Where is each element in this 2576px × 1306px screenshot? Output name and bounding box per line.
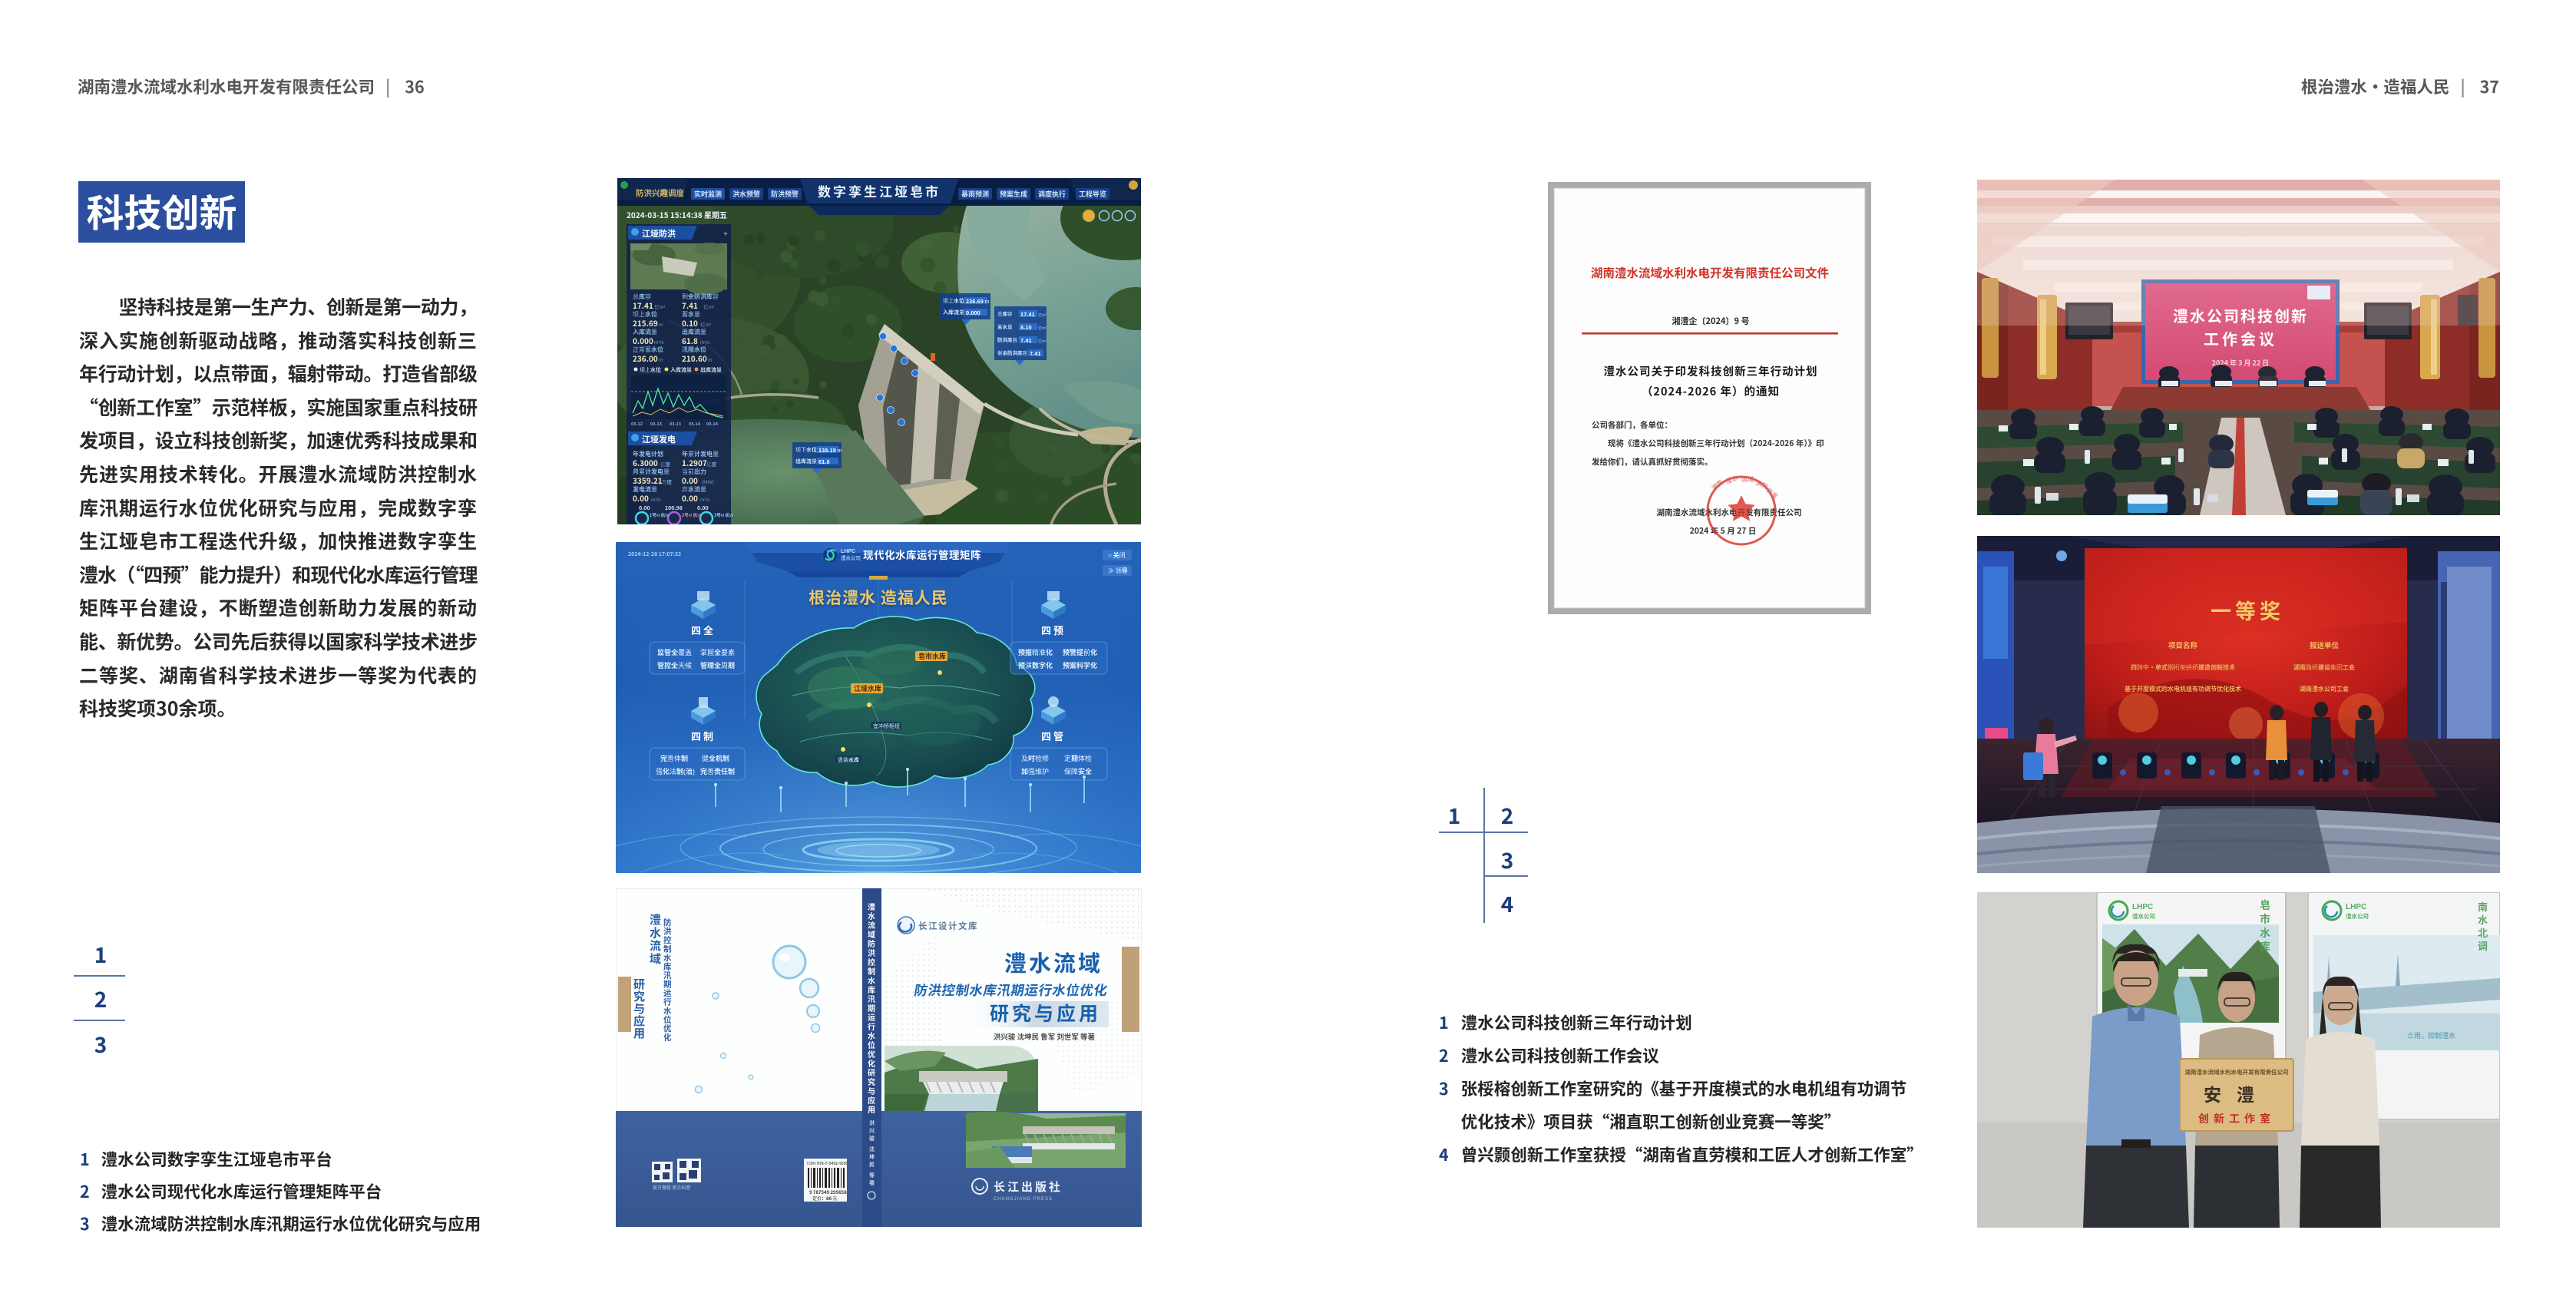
svg-text:0.00: 0.00 bbox=[682, 474, 698, 486]
svg-text:8.10: 8.10 bbox=[1020, 324, 1032, 332]
svg-text:现代化水库运行管理矩阵: 现代化水库运行管理矩阵 bbox=[863, 547, 981, 562]
svg-text:0.00: 0.00 bbox=[639, 504, 650, 512]
svg-text:坝上水位: 坝上水位 bbox=[943, 297, 964, 305]
svg-text:100.98: 100.98 bbox=[665, 504, 683, 512]
svg-text:0.000: 0.000 bbox=[633, 335, 653, 346]
svg-text:澧水流域: 澧水流域 bbox=[1004, 946, 1103, 978]
svg-text:m: m bbox=[659, 320, 663, 328]
svg-text:亿m³: 亿m³ bbox=[1038, 326, 1047, 331]
svg-text:3359.21: 3359.21 bbox=[633, 474, 663, 486]
svg-text:管理全周期: 管理全周期 bbox=[700, 660, 735, 670]
svg-text:预演数字化: 预演数字化 bbox=[1018, 660, 1053, 670]
svg-text:2024 年 5 月 27 日: 2024 年 5 月 27 日 bbox=[1690, 525, 1757, 537]
svg-text:m: m bbox=[659, 355, 663, 363]
svg-text:强化法制(治): 强化法制(治) bbox=[656, 766, 695, 776]
svg-text:2号M 机W: 2号M 机W bbox=[682, 512, 702, 518]
svg-text:蓄水量: 蓄水量 bbox=[997, 322, 1013, 330]
svg-text:LHPC: LHPC bbox=[2346, 900, 2366, 911]
svg-text:四全: 四全 bbox=[691, 623, 716, 637]
svg-text:江垭水库: 江垭水库 bbox=[854, 683, 881, 693]
svg-text:03-12: 03-12 bbox=[631, 421, 643, 427]
svg-text:坝上水位: 坝上水位 bbox=[640, 366, 661, 374]
svg-text:掌握全要素: 掌握全要素 bbox=[700, 647, 735, 657]
svg-text:兴: 兴 bbox=[869, 1127, 875, 1135]
svg-text:骏: 骏 bbox=[869, 1135, 875, 1142]
svg-text:210.60: 210.60 bbox=[682, 352, 707, 364]
svg-text:预报精准化: 预报精准化 bbox=[1018, 647, 1053, 657]
svg-text:合用，控制澧水: 合用，控制澧水 bbox=[2407, 1030, 2455, 1040]
svg-text:亿m³: 亿m³ bbox=[1038, 339, 1047, 344]
svg-text:发给你们，请认真抓好贯彻落实。: 发给你们，请认真抓好贯彻落实。 bbox=[1592, 456, 1713, 468]
svg-text:安澧: 安澧 bbox=[2204, 1080, 2270, 1106]
svg-text:公司各部门，各单位：: 公司各部门，各单位： bbox=[1592, 419, 1672, 431]
svg-text:湖南澧水流域水利水电开发有限责任公司: 湖南澧水流域水利水电开发有限责任公司 bbox=[2185, 1068, 2289, 1076]
svg-text:四管: 四管 bbox=[1041, 729, 1066, 743]
svg-text:长江设计文库: 长江设计文库 bbox=[918, 920, 978, 932]
svg-text:防洪控制水库汛期运行水位优化: 防洪控制水库汛期运行水位优化 bbox=[913, 980, 1109, 1000]
svg-text:湖南澧水流域水利水电开发有限责任公司文件: 湖南澧水流域水利水电开发有限责任公司文件 bbox=[1591, 264, 1829, 281]
svg-text:暴雨预测: 暴雨预测 bbox=[961, 189, 989, 199]
svg-text:江垭防洪: 江垭防洪 bbox=[642, 227, 676, 240]
svg-text:亿度: 亿度 bbox=[706, 460, 717, 468]
svg-text:澧水流域防洪控制水库汛期运行水位优化研究与应用: 澧水流域防洪控制水库汛期运行水位优化研究与应用 bbox=[868, 901, 875, 1115]
svg-text:研究与应用: 研究与应用 bbox=[990, 999, 1101, 1027]
svg-text:洪: 洪 bbox=[869, 1119, 875, 1127]
svg-text:报送单位: 报送单位 bbox=[2310, 640, 2340, 650]
svg-text:防洪控制水库汛期运行水位优化: 防洪控制水库汛期运行水位优化 bbox=[663, 917, 672, 1043]
svg-text:17.41: 17.41 bbox=[633, 299, 653, 311]
svg-text:入库流量: 入库流量 bbox=[943, 309, 964, 316]
svg-text:皂市水库: 皂市水库 bbox=[918, 651, 946, 661]
svg-text:亿度: 亿度 bbox=[660, 460, 671, 468]
svg-text:流域: 流域 bbox=[1741, 475, 1754, 484]
svg-text:亿m³: 亿m³ bbox=[654, 303, 666, 310]
svg-text:0.00: 0.00 bbox=[633, 492, 649, 504]
svg-text:1.2907: 1.2907 bbox=[682, 457, 707, 468]
svg-text:万度: 万度 bbox=[662, 478, 673, 485]
svg-text:健全机制: 健全机制 bbox=[702, 753, 729, 763]
svg-text:138.19 m: 138.19 m bbox=[818, 447, 842, 455]
svg-text:m³/s: m³/s bbox=[654, 338, 664, 346]
svg-text:○ 关闭: ○ 关闭 bbox=[1108, 551, 1126, 560]
svg-text:湖南澧水公司工会: 湖南澧水公司工会 bbox=[2300, 685, 2349, 693]
svg-text:防洪预警: 防洪预警 bbox=[771, 189, 799, 199]
svg-text:出库流量: 出库流量 bbox=[795, 458, 817, 465]
svg-text:2024-12-28 17:07:32: 2024-12-28 17:07:32 bbox=[628, 551, 681, 558]
svg-text:盘装水库: 盘装水库 bbox=[838, 756, 859, 764]
svg-text:澧水公司: 澧水公司 bbox=[841, 554, 861, 561]
svg-text:著: 著 bbox=[869, 1179, 875, 1187]
svg-text:03-14: 03-14 bbox=[706, 421, 719, 427]
svg-text:61.8: 61.8 bbox=[818, 458, 830, 466]
svg-text:基于开度模式的水电机组有功调节优化技术: 基于开度模式的水电机组有功调节优化技术 bbox=[2125, 685, 2241, 693]
svg-text:1号M 机W: 1号M 机W bbox=[650, 512, 670, 518]
svg-text:0.000: 0.000 bbox=[966, 309, 980, 317]
svg-text:3号M 机W: 3号M 机W bbox=[714, 512, 734, 518]
svg-text:防洪兴趣调度: 防洪兴趣调度 bbox=[636, 187, 684, 199]
svg-text:17.41: 17.41 bbox=[1020, 311, 1035, 319]
svg-text:数字孪生江垭皂市: 数字孪生江垭皂市 bbox=[818, 181, 941, 200]
svg-text:保障安全: 保障安全 bbox=[1064, 766, 1092, 776]
svg-text:澧水流域: 澧水流域 bbox=[650, 911, 661, 967]
svg-text:m³/s: m³/s bbox=[700, 338, 710, 346]
svg-text:完善体制: 完善体制 bbox=[660, 753, 688, 763]
svg-text:南水北调: 南水北调 bbox=[2478, 899, 2488, 953]
svg-text:≫ 领导: ≫ 领导 bbox=[1108, 567, 1128, 575]
svg-text:监管全覆盖: 监管全覆盖 bbox=[657, 647, 692, 657]
svg-text:坝下水位: 坝下水位 bbox=[795, 446, 817, 454]
svg-text:管控全天候: 管控全天候 bbox=[657, 660, 692, 670]
svg-text:2024-03-15 15:14:38 星期五: 2024-03-15 15:14:38 星期五 bbox=[627, 209, 727, 220]
svg-text:四跨中·单式钢桁架拱桥建造创新技术: 四跨中·单式钢桁架拱桥建造创新技术 bbox=[2131, 663, 2235, 672]
svg-text:预案科学化: 预案科学化 bbox=[1063, 660, 1097, 670]
svg-text:澧水公司科技创新: 澧水公司科技创新 bbox=[2173, 304, 2308, 326]
svg-text:CHANGJIANG PRESS: CHANGJIANG PRESS bbox=[994, 1195, 1053, 1202]
svg-text:官方微信 官方抖音: 官方微信 官方抖音 bbox=[653, 1184, 690, 1191]
svg-text:6.3000: 6.3000 bbox=[633, 457, 658, 468]
svg-text:皂市水库: 皂市水库 bbox=[2260, 898, 2270, 954]
svg-text:亿m³: 亿m³ bbox=[703, 303, 715, 310]
svg-text:0.00: 0.00 bbox=[682, 492, 698, 504]
svg-text:四预: 四预 bbox=[1041, 623, 1066, 637]
svg-text:防洪库容: 防洪库容 bbox=[997, 336, 1018, 343]
svg-text:完善责任制: 完善责任制 bbox=[700, 766, 735, 776]
svg-text:一等奖: 一等奖 bbox=[2211, 595, 2284, 625]
svg-text:坤: 坤 bbox=[869, 1153, 875, 1161]
svg-text:民: 民 bbox=[869, 1161, 875, 1169]
svg-text:沈: 沈 bbox=[869, 1146, 875, 1153]
svg-text:加强维护: 加强维护 bbox=[1021, 766, 1049, 776]
svg-text:澧水公司: 澧水公司 bbox=[2132, 912, 2155, 921]
svg-text:236.00: 236.00 bbox=[633, 352, 658, 364]
svg-text:LHPC: LHPC bbox=[2132, 900, 2153, 911]
svg-text:长江出版社: 长江出版社 bbox=[994, 1179, 1063, 1195]
svg-text:亿m³: 亿m³ bbox=[1038, 312, 1047, 318]
svg-text:洪水预警: 洪水预警 bbox=[732, 189, 760, 199]
svg-text:现将《澧水公司科技创新三年行动计划（2024-2026 年）: 现将《澧水公司科技创新三年行动计划（2024-2026 年）》印 bbox=[1608, 438, 1824, 449]
svg-text:215.69: 215.69 bbox=[633, 317, 658, 329]
svg-text:预警提前化: 预警提前化 bbox=[1063, 647, 1097, 657]
svg-text:7.41: 7.41 bbox=[1020, 337, 1032, 345]
svg-text:入库流量: 入库流量 bbox=[670, 366, 692, 374]
svg-text:工程导览: 工程导览 bbox=[1079, 189, 1106, 199]
svg-text:总库容: 总库容 bbox=[997, 309, 1013, 317]
svg-text:定价：86 元: 定价：86 元 bbox=[812, 1195, 837, 1202]
svg-text:湖南澧水流域水利水电开发有限责任公司: 湖南澧水流域水利水电开发有限责任公司 bbox=[1657, 507, 1802, 518]
svg-text:项目名称: 项目名称 bbox=[2168, 640, 2198, 650]
svg-text:湘澧企〔2024〕9 号: 湘澧企〔2024〕9 号 bbox=[1672, 315, 1750, 327]
svg-text:湖南路桥建设集团工会: 湖南路桥建设集团工会 bbox=[2293, 663, 2355, 672]
svg-text:创新工作室: 创新工作室 bbox=[2198, 1111, 2275, 1126]
svg-text:调度执行: 调度执行 bbox=[1038, 189, 1066, 199]
svg-text:0.10: 0.10 bbox=[682, 317, 698, 329]
svg-text:m³/s: m³/s bbox=[700, 495, 710, 503]
svg-text:03-13: 03-13 bbox=[670, 421, 681, 427]
svg-text:洪兴骏 沈坤民 鲁军 刘世军 等著: 洪兴骏 沈坤民 鲁军 刘世军 等著 bbox=[994, 1031, 1096, 1042]
svg-text:等: 等 bbox=[869, 1172, 875, 1179]
svg-text:03-13: 03-13 bbox=[650, 421, 662, 427]
svg-text:剩余防洪库容: 剩余防洪库容 bbox=[997, 349, 1028, 356]
svg-text:m: m bbox=[708, 355, 712, 363]
svg-text:工作会议: 工作会议 bbox=[2204, 327, 2277, 349]
svg-text:宜冲桥枢纽: 宜冲桥枢纽 bbox=[873, 722, 900, 730]
svg-text:7.41: 7.41 bbox=[1030, 350, 1041, 358]
svg-text:四制: 四制 bbox=[691, 729, 716, 743]
svg-text:+: + bbox=[723, 227, 728, 239]
svg-text:0.00: 0.00 bbox=[697, 504, 709, 512]
svg-text:236.69 m: 236.69 m bbox=[966, 298, 990, 306]
svg-text:研究与应用: 研究与应用 bbox=[633, 976, 645, 1041]
svg-text:实时监测: 实时监测 bbox=[694, 189, 722, 199]
svg-text:定期体检: 定期体检 bbox=[1064, 753, 1092, 763]
svg-text:江垭发电: 江垭发电 bbox=[642, 433, 676, 445]
svg-text:m³/s: m³/s bbox=[651, 495, 661, 503]
svg-text:ISBN 978-7-5492-9565-8: ISBN 978-7-5492-9565-8 bbox=[807, 1161, 852, 1166]
svg-text:澧水公司关于印发科技创新三年行动计划: 澧水公司关于印发科技创新三年行动计划 bbox=[1604, 363, 1818, 379]
svg-text:亿m³: 亿m³ bbox=[700, 320, 712, 328]
svg-text:(MW): (MW) bbox=[702, 478, 714, 485]
svg-text:预案生成: 预案生成 bbox=[1000, 189, 1027, 199]
svg-text:澧水公司: 澧水公司 bbox=[2346, 912, 2369, 921]
svg-text:（2024-2026 年）的通知: （2024-2026 年）的通知 bbox=[1642, 383, 1780, 399]
svg-text:及时检修: 及时检修 bbox=[1021, 753, 1049, 763]
svg-text:出库流量: 出库流量 bbox=[700, 366, 722, 374]
svg-text:7.41: 7.41 bbox=[682, 299, 698, 311]
svg-text:03-14: 03-14 bbox=[689, 421, 701, 427]
svg-text:61.8: 61.8 bbox=[682, 335, 698, 346]
